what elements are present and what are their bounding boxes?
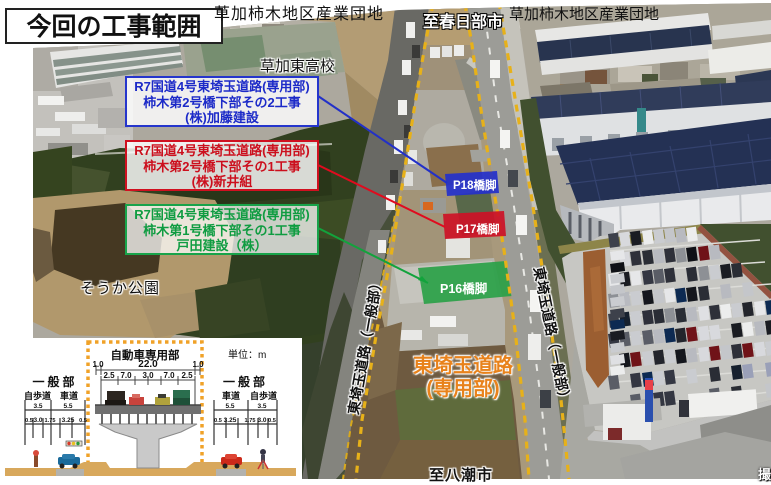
svg-text:0.5: 0.5 xyxy=(25,418,33,424)
svg-text:3.0: 3.0 xyxy=(257,417,266,424)
svg-text:7.0: 7.0 xyxy=(163,371,175,380)
svg-text:5.5: 5.5 xyxy=(63,403,72,410)
svg-text:2.5: 2.5 xyxy=(103,371,115,380)
svg-text:0.5: 0.5 xyxy=(79,418,87,424)
svg-text:3.5: 3.5 xyxy=(33,403,42,410)
svg-text:2.5: 2.5 xyxy=(181,371,193,380)
svg-text:3.25: 3.25 xyxy=(62,417,75,424)
svg-text:3.5: 3.5 xyxy=(257,403,266,410)
svg-text:3.25: 3.25 xyxy=(224,417,237,424)
svg-text:3.0: 3.0 xyxy=(33,417,42,424)
svg-text:1.75: 1.75 xyxy=(45,418,56,424)
svg-text:5.5: 5.5 xyxy=(225,403,234,410)
svg-text:1.75: 1.75 xyxy=(245,418,256,424)
svg-text:0.5: 0.5 xyxy=(268,418,276,424)
svg-text:7.0: 7.0 xyxy=(120,371,132,380)
svg-text:0.5: 0.5 xyxy=(214,418,222,424)
svg-text:3.0: 3.0 xyxy=(142,371,154,380)
